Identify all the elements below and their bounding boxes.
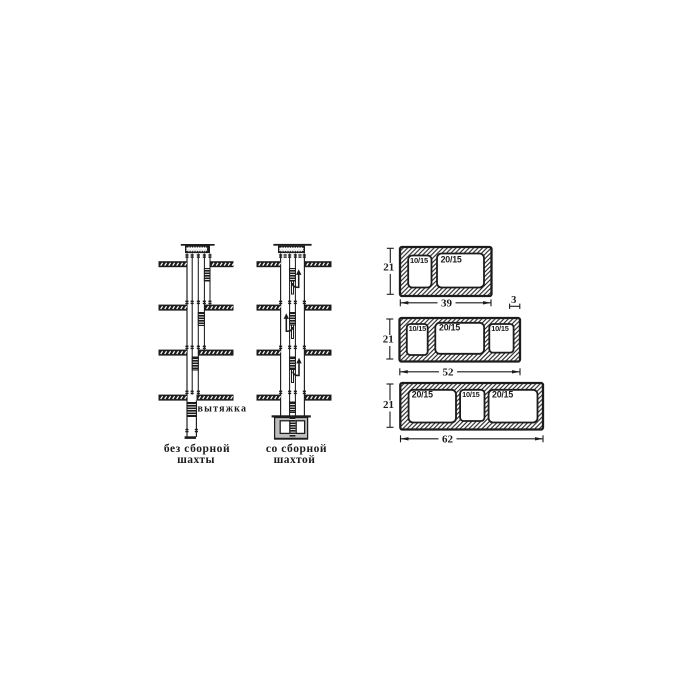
- svg-text:шахты: шахты: [177, 454, 215, 466]
- svg-text:21: 21: [383, 334, 394, 346]
- svg-text:10/15: 10/15: [491, 324, 509, 333]
- svg-text:21: 21: [383, 262, 394, 274]
- svg-text:20/15: 20/15: [492, 389, 513, 399]
- svg-text:20/15: 20/15: [412, 389, 433, 399]
- svg-text:10/15: 10/15: [462, 390, 480, 399]
- svg-text:21: 21: [383, 399, 394, 411]
- svg-text:39: 39: [441, 298, 453, 310]
- svg-text:62: 62: [442, 434, 454, 446]
- svg-text:3: 3: [511, 295, 516, 306]
- svg-text:вытяжка: вытяжка: [198, 404, 248, 415]
- svg-text:10/15: 10/15: [410, 256, 429, 265]
- svg-text:20/15: 20/15: [439, 322, 460, 332]
- svg-text:10/15: 10/15: [409, 324, 427, 333]
- svg-text:52: 52: [443, 367, 455, 379]
- svg-text:шахтой: шахтой: [274, 454, 316, 466]
- svg-text:20/15: 20/15: [441, 255, 462, 265]
